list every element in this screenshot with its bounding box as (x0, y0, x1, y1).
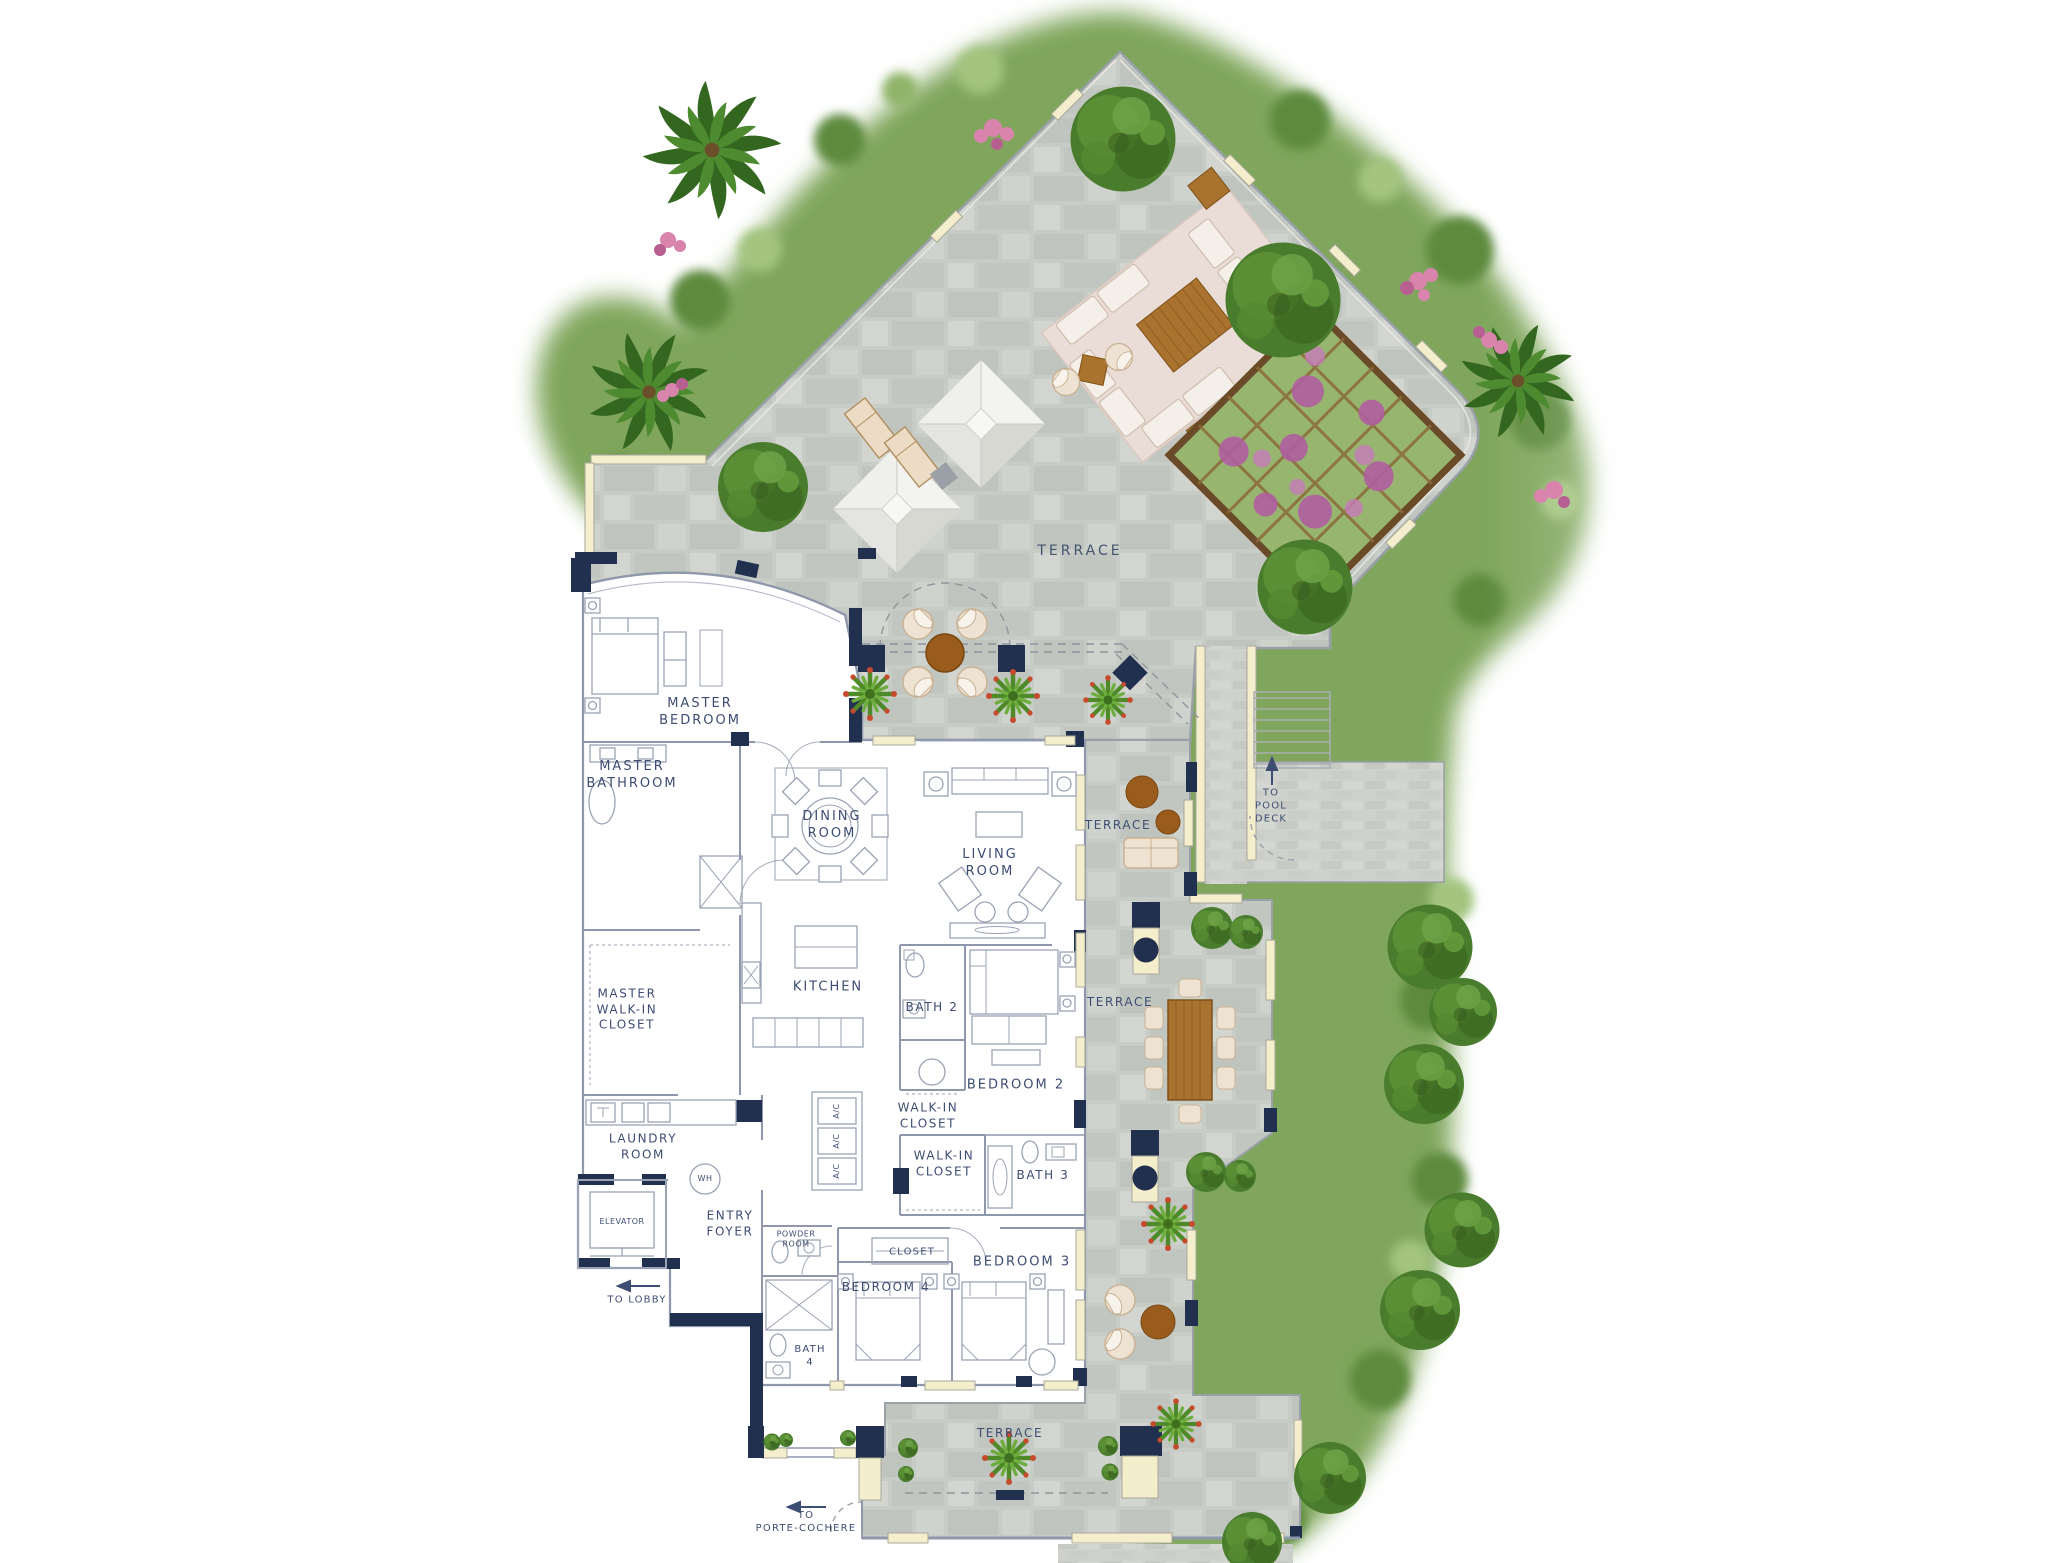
room-label-closet: CLOSET (889, 1246, 935, 1259)
water-heater-label: WH (698, 1174, 713, 1184)
room-label-bedroom-4: BEDROOM 4 (842, 1280, 931, 1296)
room-label-laundry-room: LAUNDRYROOM (609, 1131, 677, 1162)
room-label-walk-in-closet-3: WALK-INCLOSET (914, 1148, 975, 1179)
room-label-master-bedroom: MASTERBEDROOM (659, 696, 741, 730)
room-label-powder-room: POWDERROOM (777, 1230, 816, 1251)
terrace-east-label: TERRACE (1087, 995, 1153, 1011)
room-label-entry-foyer: ENTRYFOYER (707, 1208, 754, 1239)
room-label-living-room: LIVINGROOM (962, 847, 1018, 881)
floor-plan-page: TERRACE TERRACE TERRACE TERRACE MASTERBE… (0, 0, 2048, 1563)
to-lobby-label: TO LOBBY (607, 1294, 666, 1307)
room-label-elevator: ELEVATOR (599, 1217, 644, 1227)
room-label-master-bathroom: MASTERBATHROOM (586, 759, 677, 793)
floor-plan-drawing (0, 0, 2048, 1563)
terrace-mid-label: TERRACE (1085, 818, 1151, 834)
room-label-bedroom-3: BEDROOM 3 (973, 1255, 1071, 1272)
room-label-kitchen: KITCHEN (793, 980, 863, 997)
room-label-bath-4: BATH4 (794, 1343, 825, 1369)
terrace-main-label: TERRACE (1037, 542, 1122, 560)
terrace-south-label: TERRACE (977, 1426, 1043, 1442)
room-label-bedroom-2: BEDROOM 2 (967, 1078, 1065, 1095)
to-pool-deck-label: TOPOOLDECK (1255, 787, 1287, 826)
ac-label: A/C (832, 1163, 842, 1178)
room-label-dining-room: DININGROOM (802, 809, 861, 843)
room-label-master-walk-in-closet: MASTERWALK-INCLOSET (597, 987, 658, 1034)
hedge-fade (1480, 0, 2048, 1563)
ac-label: A/C (832, 1103, 842, 1118)
room-label-bath-2: BATH 2 (906, 1000, 959, 1016)
ac-label: A/C (832, 1133, 842, 1148)
to-porte-cochere-label: TOPORTE-COCHERE (756, 1509, 857, 1535)
left-arrow-icon (618, 1281, 660, 1291)
room-label-bath-3: BATH 3 (1017, 1168, 1070, 1184)
room-label-walk-in-closet-2: WALK-INCLOSET (898, 1100, 959, 1131)
